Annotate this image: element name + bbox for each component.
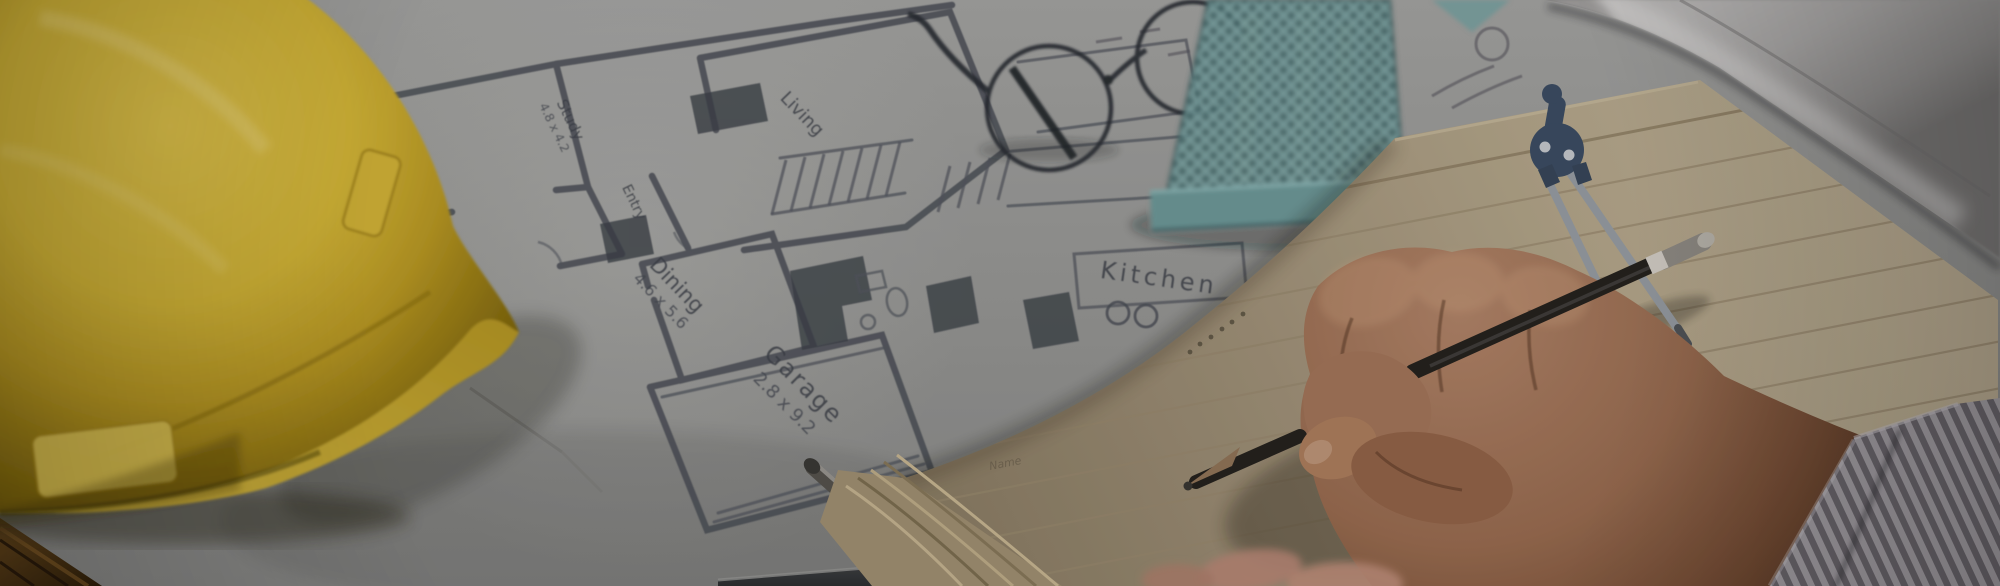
hero-photo: Study 4.8 x 4.2 Entry Living Dining 4.6 … (0, 0, 2000, 586)
vignette-overlay (0, 0, 2000, 586)
hero-banner: Study 4.8 x 4.2 Entry Living Dining 4.6 … (0, 0, 2000, 586)
